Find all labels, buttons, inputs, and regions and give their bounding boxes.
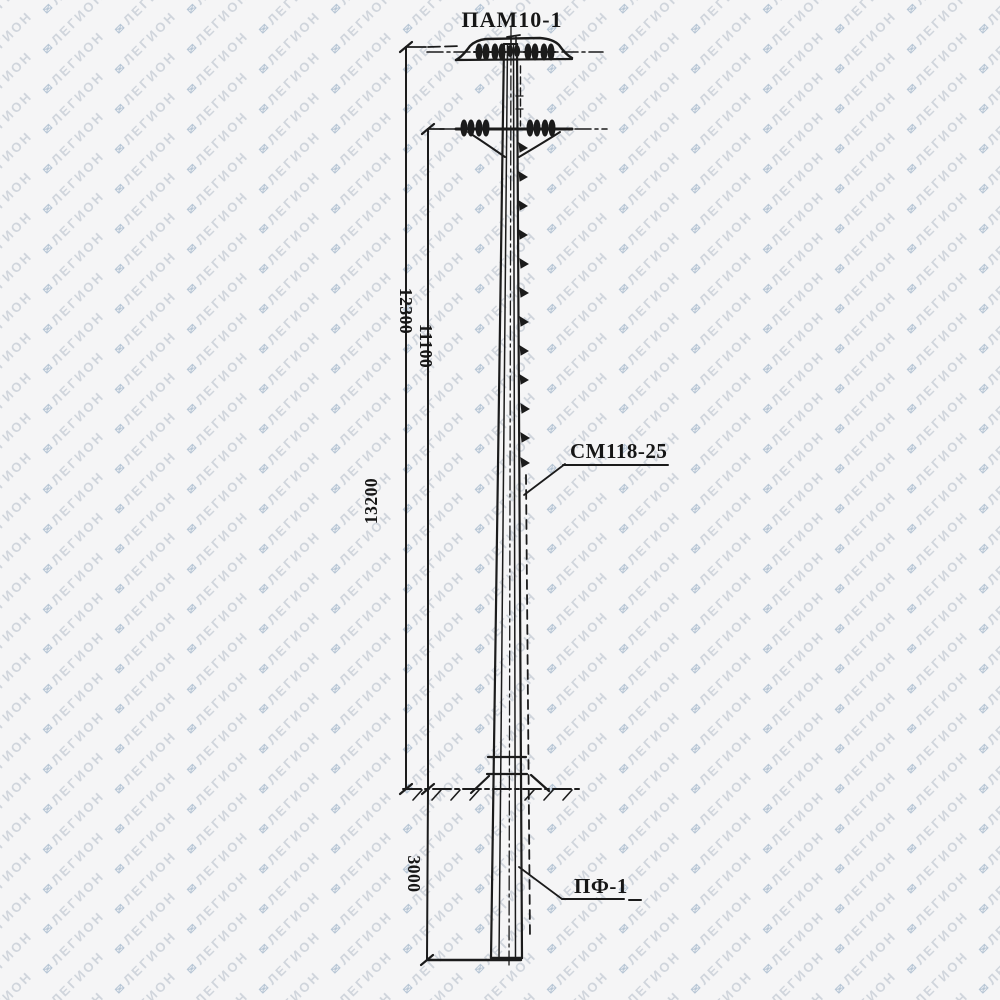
dim-text-12300: 12300	[396, 288, 416, 334]
foundation-post	[526, 475, 530, 938]
pole-left-edge	[491, 44, 504, 958]
pole-body	[487, 44, 529, 958]
dimension-line-11100	[422, 124, 444, 794]
drawing-title: ПАМ10-1	[461, 7, 562, 32]
scanned-drawing-page: ✉ЛЕГИОН✉ЛЕГИОН✉ЛЕГИОН✉ЛЕГИОН✉ЛЕГИОН✉ЛЕГИ…	[0, 0, 1000, 1000]
dimension-line-3000	[421, 789, 521, 965]
step-bolts	[519, 143, 529, 467]
dim-text-11100: 11100	[416, 324, 436, 368]
pole-drawing: ПАМ10-1	[0, 0, 1000, 1000]
pole-axis-centerline	[509, 26, 511, 968]
dimension-line-12300	[400, 42, 460, 794]
pole-label: СМ118-25	[570, 439, 667, 463]
lower-crossarm-brace-right	[519, 132, 560, 157]
pole-right-edge	[517, 44, 522, 958]
dim-text-3000: 3000	[404, 856, 424, 893]
foundation-post-hidden-edge	[526, 475, 530, 938]
pole-type-callout	[524, 464, 668, 495]
foundation-label: ПФ-1	[574, 874, 628, 898]
foundation-label-leader	[519, 867, 562, 899]
dim-text-13200: 13200	[361, 478, 381, 524]
pole-label-leader	[524, 464, 565, 495]
